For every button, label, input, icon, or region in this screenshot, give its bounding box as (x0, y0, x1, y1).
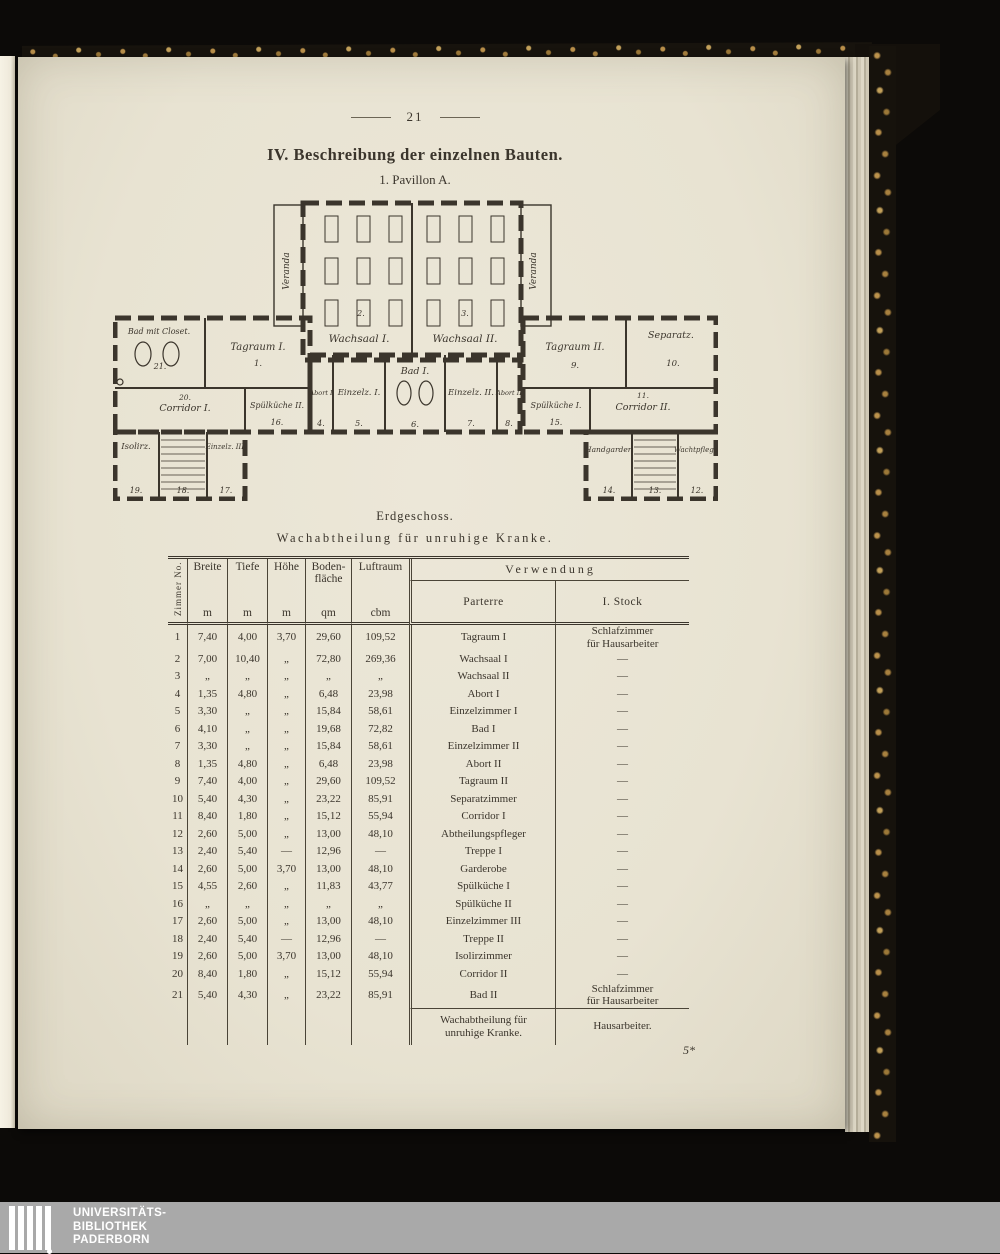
cell-stock: — (555, 773, 689, 791)
label-bad-closet-no: 21. (153, 362, 167, 371)
section-subtitle: 1. Pavillon A. (18, 172, 812, 188)
cell-breite: 4,55 (187, 878, 227, 896)
cell-tiefe: „ (227, 668, 267, 686)
cell-stock: Schlafzimmer für Hausarbeiter (555, 983, 689, 1008)
cell-tiefe: 5,00 (227, 913, 267, 931)
table-row: 18 2,40 5,40 — 12,96 — Treppe II — (168, 930, 689, 948)
cell-breite: „ (187, 668, 227, 686)
cell-no: 10 (168, 790, 187, 808)
table-row: 14 2,60 5,00 3,70 13,00 48,10 Garderobe … (168, 860, 689, 878)
cell-luftraum: 72,82 (351, 720, 409, 738)
header-stock: I. Stock (555, 581, 689, 625)
cell-tiefe: 4,00 (227, 625, 267, 650)
cell-hoehe: „ (267, 983, 305, 1008)
section-title: IV. Beschreibung der einzelnen Bauten. (18, 145, 812, 165)
header-bodenflaeche: Boden- flächeqm (305, 559, 351, 625)
cell-no: 12 (168, 825, 187, 843)
cell-flaeche: 72,80 (305, 650, 351, 668)
cell-no: 4 (168, 685, 187, 703)
cell-no: 5 (168, 703, 187, 721)
label-separatz-no: 10. (666, 359, 680, 369)
cell-tiefe: 4,30 (227, 790, 267, 808)
cell-tiefe: 4,00 (227, 773, 267, 791)
cell-stock: — (555, 790, 689, 808)
cell-parterre: Abort II (409, 755, 555, 773)
label-tagraum2-no: 9. (571, 361, 579, 371)
cell-flaeche: 29,60 (305, 625, 351, 650)
cell-stock: — (555, 720, 689, 738)
label-corridor1: Corridor I. (159, 403, 210, 414)
cell-stock: — (555, 808, 689, 826)
cell-tiefe: 2,60 (227, 878, 267, 896)
cell-hoehe: „ (267, 773, 305, 791)
cell-no: 18 (168, 930, 187, 948)
table-row: 5 3,30 „ „ 15,84 58,61 Einzelzimmer I — (168, 703, 689, 721)
header-tiefe: Tiefem (227, 559, 267, 625)
cell-luftraum: 85,91 (351, 983, 409, 1008)
cell-breite: 8,40 (187, 808, 227, 826)
label-einzelz2: Einzelz. II. (447, 388, 494, 398)
cell-no: 6 (168, 720, 187, 738)
header-hoehe: Höhem (267, 559, 305, 625)
label-tagraum2: Tagraum II. (545, 342, 604, 353)
cell-luftraum: 58,61 (351, 738, 409, 756)
cell-hoehe: „ (267, 755, 305, 773)
scanned-book-page: 21 IV. Beschreibung der einzelnen Bauten… (18, 57, 845, 1129)
label-handgarderobe-no: 14. (603, 486, 616, 495)
cell-no: 8 (168, 755, 187, 773)
cell-no: 3 (168, 668, 187, 686)
cell-no: 1 (168, 625, 187, 650)
page-number-row: 21 (18, 109, 812, 125)
cell-luftraum: 23,98 (351, 755, 409, 773)
cell-stock: — (555, 825, 689, 843)
adjacent-page-edge (0, 56, 15, 1128)
table-row: 17 2,60 5,00 „ 13,00 48,10 Einzelzimmer … (168, 913, 689, 931)
page-number-dash-left (351, 117, 391, 118)
label-veranda-right: Veranda (529, 252, 539, 290)
cell-no: 13 (168, 843, 187, 861)
logo-bar (27, 1206, 33, 1250)
cell-parterre: Corridor II (409, 965, 555, 983)
cell-tiefe: „ (227, 703, 267, 721)
cell-stock: — (555, 755, 689, 773)
cell-empty (227, 1008, 267, 1045)
cell-luftraum: — (351, 843, 409, 861)
cell-luftraum: 55,94 (351, 808, 409, 826)
cell-no: 11 (168, 808, 187, 826)
page-number-dash-right (440, 117, 480, 118)
cell-hoehe: „ (267, 720, 305, 738)
cell-hoehe: „ (267, 965, 305, 983)
cell-flaeche: 11,83 (305, 878, 351, 896)
cell-parterre: Corridor I (409, 808, 555, 826)
header-breite: Breitem (187, 559, 227, 625)
label-einzelz3: Einzelz. III. (205, 443, 247, 451)
cell-breite: 8,40 (187, 965, 227, 983)
cell-breite: 2,60 (187, 948, 227, 966)
cell-parterre: Abtheilungspfleger (409, 825, 555, 843)
label-isolirz: Isolirz. (120, 442, 151, 452)
cell-parterre: Treppe II (409, 930, 555, 948)
cell-parterre: Isolirzimmer (409, 948, 555, 966)
label-abort2-no: 8. (505, 419, 513, 428)
cell-stock: — (555, 685, 689, 703)
cell-parterre: Einzelzimmer III (409, 913, 555, 931)
label-tagraum1-no: 1. (254, 359, 262, 369)
cell-tiefe: 5,00 (227, 948, 267, 966)
table-row: 19 2,60 5,00 3,70 13,00 48,10 Isolirzimm… (168, 948, 689, 966)
label-bad1-no: 6. (411, 420, 419, 430)
cell-breite: 2,60 (187, 825, 227, 843)
logo-bar (9, 1206, 15, 1250)
library-name-line3: PADERBORN (73, 1234, 166, 1248)
label-bad1: Bad I. (400, 366, 430, 377)
label-handgarderobe: Handgarder. (584, 445, 633, 454)
cell-flaeche: 23,22 (305, 790, 351, 808)
label-wachtpflege-no: 12. (691, 486, 704, 495)
label-wachtpflege: Wachtpflege. (674, 446, 718, 454)
cell-parterre: Wachsaal II (409, 668, 555, 686)
table-row: 12 2,60 5,00 „ 13,00 48,10 Abtheilungspf… (168, 825, 689, 843)
cell-breite: „ (187, 895, 227, 913)
table-row: 8 1,35 4,80 „ 6,48 23,98 Abort II — (168, 755, 689, 773)
cell-parterre: Bad I (409, 720, 555, 738)
label-wachsaal2-no: 3. (461, 309, 469, 318)
table-row: 21 5,40 4,30 „ 23,22 85,91 Bad II Schlaf… (168, 983, 689, 1008)
logo-bar (18, 1206, 24, 1250)
cell-hoehe: 3,70 (267, 860, 305, 878)
table-row: 3 „ „ „ „ „ Wachsaal II — (168, 668, 689, 686)
cell-flaeche: „ (305, 668, 351, 686)
cell-parterre: Spülküche I (409, 878, 555, 896)
cell-flaeche: 23,22 (305, 983, 351, 1008)
cell-breite: 1,35 (187, 755, 227, 773)
cell-breite: 2,60 (187, 860, 227, 878)
cell-breite: 3,30 (187, 738, 227, 756)
cell-flaeche: 13,00 (305, 860, 351, 878)
cell-parterre: Spülküche II (409, 895, 555, 913)
cell-empty (351, 1008, 409, 1045)
cell-breite: 3,30 (187, 703, 227, 721)
cell-flaeche: 29,60 (305, 773, 351, 791)
cell-luftraum: 269,36 (351, 650, 409, 668)
cell-flaeche: 15,84 (305, 738, 351, 756)
label-isolirz-no: 19. (130, 486, 143, 495)
cell-no: 20 (168, 965, 187, 983)
book-cover-marbled-edge (869, 46, 896, 1142)
cell-stock: Schlafzimmer für Hausarbeiter (555, 625, 689, 650)
cell-stock: — (555, 703, 689, 721)
cell-tiefe: „ (227, 738, 267, 756)
cell-luftraum: 43,77 (351, 878, 409, 896)
interior-walls (115, 203, 716, 499)
library-name-line1: UNIVERSITÄTS- (73, 1207, 166, 1221)
table-row: 7 3,30 „ „ 15,84 58,61 Einzelzimmer II — (168, 738, 689, 756)
table-row: 11 8,40 1,80 „ 15,12 55,94 Corridor I — (168, 808, 689, 826)
cell-hoehe: „ (267, 790, 305, 808)
cell-empty (168, 1008, 187, 1045)
label-abort1-no: 4. (316, 419, 325, 428)
cell-hoehe: „ (267, 668, 305, 686)
cell-no: 9 (168, 773, 187, 791)
cell-luftraum: — (351, 930, 409, 948)
cell-luftraum: 48,10 (351, 825, 409, 843)
cell-hoehe: „ (267, 878, 305, 896)
cell-no: 15 (168, 878, 187, 896)
table-row: 4 1,35 4,80 „ 6,48 23,98 Abort I — (168, 685, 689, 703)
header-verwendung: Verwendung (409, 559, 689, 581)
table-row: 13 2,40 5,40 — 12,96 — Treppe I — (168, 843, 689, 861)
library-name: UNIVERSITÄTS- BIBLIOTHEK PADERBORN (73, 1207, 166, 1248)
cell-tiefe: 10,40 (227, 650, 267, 668)
label-spuelkueche2-no: 16. (271, 418, 284, 427)
table-row: 16 „ „ „ „ „ Spülküche II — (168, 895, 689, 913)
cell-hoehe: „ (267, 650, 305, 668)
cell-stock: — (555, 843, 689, 861)
label-treppe-rechts-no: 13. (649, 486, 662, 495)
cell-breite: 7,00 (187, 650, 227, 668)
cell-tiefe: 1,80 (227, 965, 267, 983)
cell-tiefe: 1,80 (227, 808, 267, 826)
cell-flaeche: 15,12 (305, 808, 351, 826)
cell-breite: 7,40 (187, 773, 227, 791)
cell-luftraum: 109,52 (351, 773, 409, 791)
cell-parterre: Einzelzimmer II (409, 738, 555, 756)
cell-hoehe: „ (267, 703, 305, 721)
cell-breite: 2,60 (187, 913, 227, 931)
summary-parterre: Wachabtheilung für unruhige Kranke. (409, 1008, 555, 1045)
cell-luftraum: 48,10 (351, 860, 409, 878)
cell-flaeche: 19,68 (305, 720, 351, 738)
cell-tiefe: „ (227, 895, 267, 913)
page-number: 21 (407, 109, 424, 125)
label-separatz: Separatz. (648, 330, 694, 341)
caption-floor-level: Erdgeschoss. (18, 509, 812, 524)
cell-luftraum: 85,91 (351, 790, 409, 808)
library-name-line2: BIBLIOTHEK (73, 1221, 166, 1235)
cell-tiefe: 4,30 (227, 983, 267, 1008)
cell-empty (305, 1008, 351, 1045)
cell-hoehe: 3,70 (267, 625, 305, 650)
cell-flaeche: 12,96 (305, 843, 351, 861)
cell-breite: 5,40 (187, 983, 227, 1008)
summary-stock: Hausarbeiter. (555, 1008, 689, 1045)
cell-breite: 2,40 (187, 843, 227, 861)
cell-parterre: Tagraum I (409, 625, 555, 650)
floor-plan: Veranda Veranda 2. Wachsaal I. 3. Wachsa… (113, 196, 718, 501)
cell-no: 16 (168, 895, 187, 913)
header-luftraum: Luftraumcbm (351, 559, 409, 625)
cell-tiefe: 5,40 (227, 930, 267, 948)
cell-hoehe: — (267, 930, 305, 948)
cell-no: 21 (168, 983, 187, 1008)
cell-parterre: Treppe I (409, 843, 555, 861)
cell-hoehe: „ (267, 913, 305, 931)
cell-stock: — (555, 668, 689, 686)
cell-stock: — (555, 650, 689, 668)
label-spuelkueche1: Spülküche I. (531, 401, 582, 410)
cell-tiefe: 5,40 (227, 843, 267, 861)
cell-hoehe: „ (267, 738, 305, 756)
cell-stock: — (555, 913, 689, 931)
cell-hoehe: 3,70 (267, 948, 305, 966)
cell-parterre: Bad II (409, 983, 555, 1008)
ub-paderborn-logo (9, 1206, 51, 1250)
label-corridor2-no: 11. (637, 391, 649, 400)
cell-breite: 1,35 (187, 685, 227, 703)
library-footer-bar: UNIVERSITÄTS- BIBLIOTHEK PADERBORN (0, 1202, 1000, 1253)
cell-breite: 7,40 (187, 625, 227, 650)
cell-tiefe: 4,80 (227, 685, 267, 703)
page-stack-edge (845, 57, 869, 1132)
table-row: 9 7,40 4,00 „ 29,60 109,52 Tagraum II — (168, 773, 689, 791)
cell-empty (187, 1008, 227, 1045)
cell-breite: 4,10 (187, 720, 227, 738)
cell-parterre: Wachsaal I (409, 650, 555, 668)
cell-no: 19 (168, 948, 187, 966)
label-einzelz1-no: 5. (355, 419, 363, 428)
label-treppe-links-no: 18. (177, 486, 190, 495)
label-corridor2: Corridor II. (616, 402, 671, 413)
cell-no: 2 (168, 650, 187, 668)
cell-stock: — (555, 965, 689, 983)
cell-flaeche: „ (305, 895, 351, 913)
table-row: 20 8,40 1,80 „ 15,12 55,94 Corridor II — (168, 965, 689, 983)
label-corridor1-no: 20. (178, 393, 191, 402)
cell-hoehe: „ (267, 808, 305, 826)
cell-luftraum: „ (351, 668, 409, 686)
cell-hoehe: „ (267, 825, 305, 843)
cell-no: 7 (168, 738, 187, 756)
cell-luftraum: 55,94 (351, 965, 409, 983)
cell-breite: 5,40 (187, 790, 227, 808)
label-einzelz1: Einzelz. I. (337, 388, 381, 398)
label-tagraum1: Tagraum I. (230, 342, 285, 353)
cell-luftraum: 23,98 (351, 685, 409, 703)
logo-bar (45, 1206, 51, 1250)
label-einzelz2-no: 7. (467, 419, 475, 428)
room-dimensions-table: Zimmer No. Breitem Tiefem Höhem Boden- f… (168, 556, 689, 1045)
cell-flaeche: 13,00 (305, 825, 351, 843)
label-wachsaal1: Wachsaal I. (329, 333, 390, 345)
header-parterre: Parterre (409, 581, 555, 625)
logo-bar (36, 1206, 42, 1250)
cell-breite: 2,40 (187, 930, 227, 948)
cell-tiefe: „ (227, 720, 267, 738)
cell-luftraum: „ (351, 895, 409, 913)
label-wachsaal2: Wachsaal II. (432, 333, 497, 345)
cell-tiefe: 5,00 (227, 860, 267, 878)
label-abort2: Abort II (495, 389, 522, 397)
table-summary-row: Wachabtheilung für unruhige Kranke. Haus… (168, 1008, 689, 1045)
cell-flaeche: 6,48 (305, 755, 351, 773)
cell-stock: — (555, 895, 689, 913)
cell-flaeche: 15,12 (305, 965, 351, 983)
ward-beds (325, 216, 504, 326)
cell-flaeche: 6,48 (305, 685, 351, 703)
cell-hoehe: „ (267, 685, 305, 703)
cell-luftraum: 109,52 (351, 625, 409, 650)
table-row: 15 4,55 2,60 „ 11,83 43,77 Spülküche I — (168, 878, 689, 896)
label-veranda-left: Veranda (282, 252, 292, 290)
label-spuelkueche2: Spülküche II. (250, 401, 304, 410)
cell-stock: — (555, 878, 689, 896)
caption-ward: Wachabtheilung für unruhige Kranke. (18, 531, 812, 546)
cell-flaeche: 12,96 (305, 930, 351, 948)
label-wachsaal1-no: 2. (356, 309, 365, 318)
cell-hoehe: — (267, 843, 305, 861)
cell-luftraum: 48,10 (351, 913, 409, 931)
label-bad-closet: Bad mit Closet. (127, 327, 190, 336)
label-einzelz3-no: 17. (220, 486, 233, 495)
cell-parterre: Einzelzimmer I (409, 703, 555, 721)
table-row: 1 7,40 4,00 3,70 29,60 109,52 Tagraum I … (168, 625, 689, 650)
table-row: 2 7,00 10,40 „ 72,80 269,36 Wachsaal I — (168, 650, 689, 668)
cell-no: 17 (168, 913, 187, 931)
cell-stock: — (555, 948, 689, 966)
cell-stock: — (555, 930, 689, 948)
table-row: 6 4,10 „ „ 19,68 72,82 Bad I — (168, 720, 689, 738)
table-body: 1 7,40 4,00 3,70 29,60 109,52 Tagraum I … (168, 625, 689, 1008)
label-spuelkueche1-no: 15. (550, 418, 563, 427)
cell-flaeche: 13,00 (305, 913, 351, 931)
cell-flaeche: 15,84 (305, 703, 351, 721)
cell-parterre: Garderobe (409, 860, 555, 878)
cell-parterre: Abort I (409, 685, 555, 703)
cell-luftraum: 58,61 (351, 703, 409, 721)
cell-stock: — (555, 738, 689, 756)
printer-signature: 5* (683, 1043, 695, 1058)
cell-tiefe: 4,80 (227, 755, 267, 773)
cell-flaeche: 13,00 (305, 948, 351, 966)
cell-parterre: Separatzimmer (409, 790, 555, 808)
cell-no: 14 (168, 860, 187, 878)
header-zimmer-no: Zimmer No. (168, 559, 187, 625)
cell-stock: — (555, 860, 689, 878)
label-abort1: Abort I (308, 389, 333, 397)
cell-parterre: Tagraum II (409, 773, 555, 791)
cell-hoehe: „ (267, 895, 305, 913)
cell-tiefe: 5,00 (227, 825, 267, 843)
cell-empty (267, 1008, 305, 1045)
cell-luftraum: 48,10 (351, 948, 409, 966)
table-row: 10 5,40 4,30 „ 23,22 85,91 Separatzimmer… (168, 790, 689, 808)
